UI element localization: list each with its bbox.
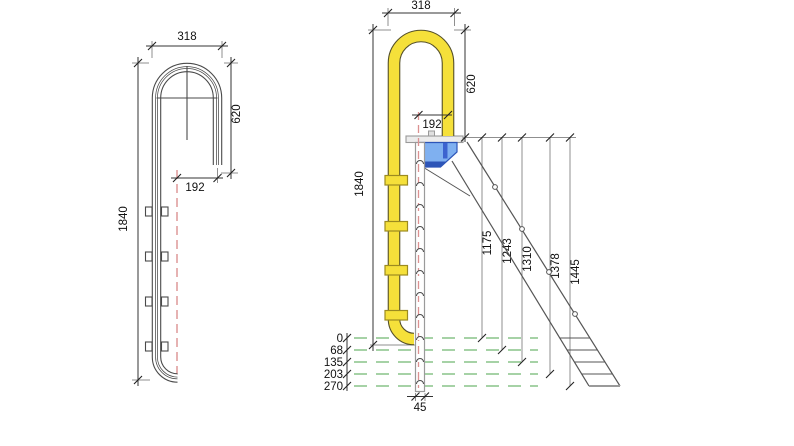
dim-label-620-right: 620 [466, 74, 478, 93]
platform-clamp-tab [429, 131, 435, 136]
dim-620-left: 620 [221, 57, 243, 179]
dim-label-620-left: 620 [231, 104, 243, 123]
technical-drawing-canvas: 318 620 192 1840 [0, 0, 794, 446]
dim-1840-left: 1840 [118, 57, 150, 386]
back-leg-front-edge [452, 161, 589, 386]
dim-label-1840-right: 1840 [354, 171, 366, 197]
level-label-135: 135 [324, 357, 343, 369]
level-label-0: 0 [337, 333, 343, 345]
ladder-front-view: 1175 1243 1310 1378 1445 [324, 0, 620, 414]
ladder-side-view: 318 620 192 1840 [118, 31, 243, 386]
dim-192-left: 192 [171, 168, 223, 194]
dim-318-right: 318 [382, 0, 461, 26]
foot-step-lines [560, 338, 612, 374]
top-step-blue [420, 143, 457, 168]
level-label-203: 203 [324, 369, 343, 381]
top-step-mid-rib [443, 143, 448, 159]
dim-318-left: 318 [146, 31, 228, 58]
front-rail [416, 143, 425, 392]
level-label-270: 270 [324, 381, 343, 393]
dim-620-right: 620 [461, 24, 478, 142]
dim-label-318-right: 318 [411, 0, 430, 12]
floor-level-scale: 0 68 135 203 270 [324, 333, 351, 393]
dim-label-318-left: 318 [177, 31, 196, 43]
platform-deck [406, 136, 463, 143]
dim-label-1175: 1175 [482, 231, 494, 256]
dim-label-1445: 1445 [570, 259, 582, 285]
dim-45-rail-width: 45 [407, 393, 433, 415]
dim-1840-right: 1840 [354, 24, 377, 351]
dim-label-1378: 1378 [550, 253, 562, 279]
leg-length-dimensions: 1175 1243 1310 1378 1445 [478, 134, 582, 391]
dim-label-1310: 1310 [522, 246, 534, 272]
dim-label-192-right: 192 [422, 119, 441, 131]
dim-label-45: 45 [414, 402, 427, 414]
leg-brace [425, 168, 471, 196]
level-label-68: 68 [330, 345, 343, 357]
dim-label-192-left: 192 [185, 182, 204, 194]
dim-label-1840-left: 1840 [118, 206, 130, 232]
ladder-drawing-svg: 318 620 192 1840 [0, 0, 794, 446]
